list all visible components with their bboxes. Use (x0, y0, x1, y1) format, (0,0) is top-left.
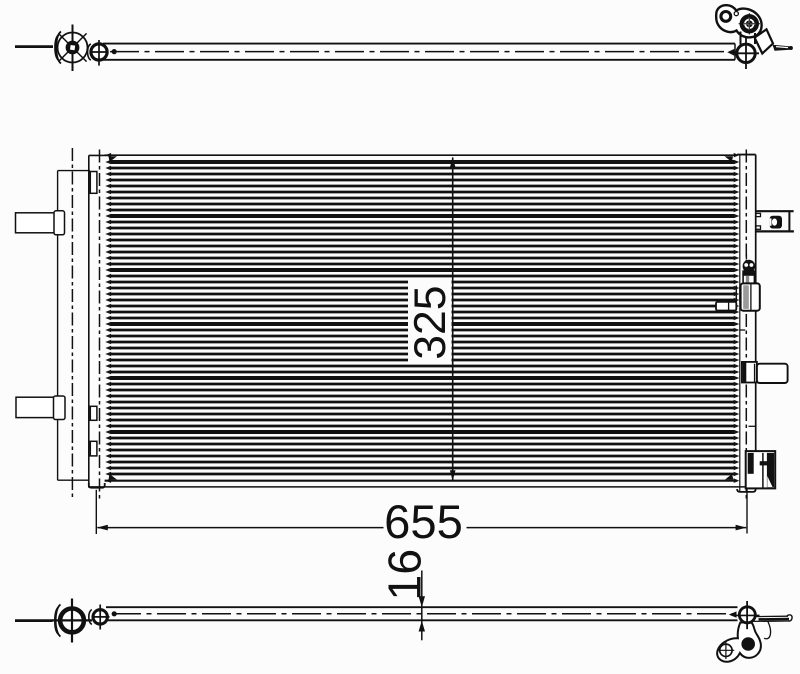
svg-text:325: 325 (406, 285, 455, 359)
svg-text:16: 16 (379, 549, 431, 601)
svg-text:655: 655 (384, 496, 463, 549)
